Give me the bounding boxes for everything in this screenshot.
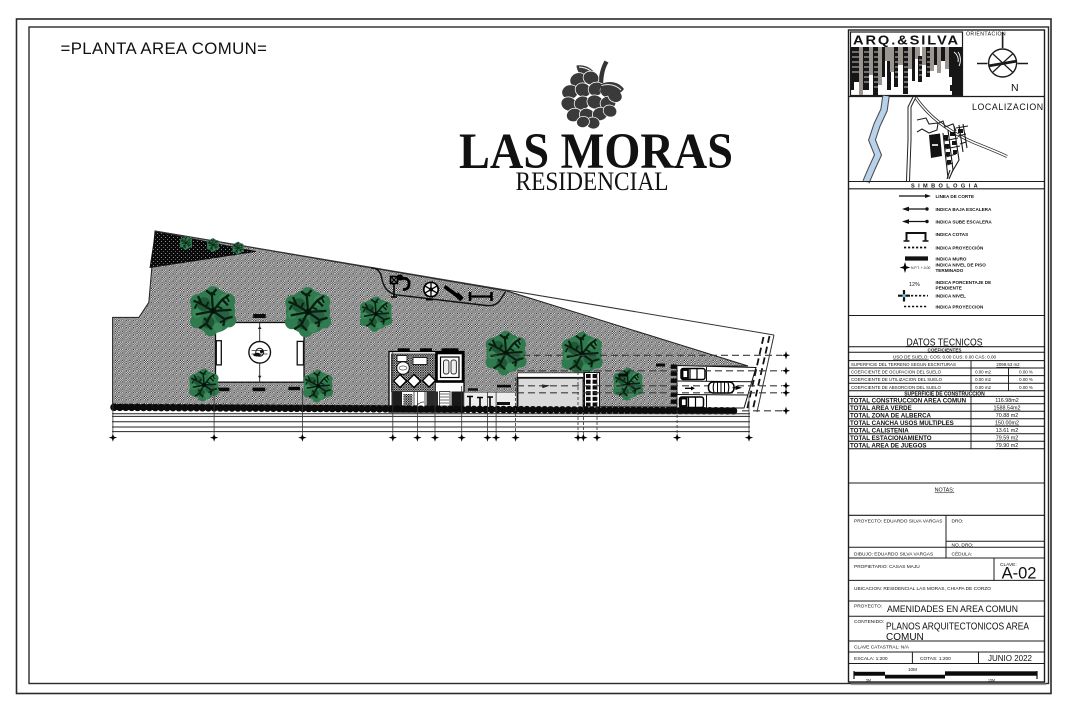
- svg-text:SUPERFICIE DEL TERRENO SEGUN E: SUPERFICIE DEL TERRENO SEGUN ESCRITURAS: [851, 362, 956, 367]
- svg-text:5M: 5M: [866, 679, 871, 683]
- svg-text:2099.53 m2: 2099.53 m2: [996, 362, 1020, 367]
- svg-text:RESIDENCIAL: RESIDENCIAL: [516, 167, 669, 196]
- svg-text:INDICA MURO: INDICA MURO: [936, 256, 967, 261]
- svg-text:10M: 10M: [908, 667, 917, 672]
- svg-text:N: N: [1011, 82, 1019, 94]
- svg-text:AMENIDADES EN AREA COMUN: AMENIDADES EN AREA COMUN: [887, 604, 1018, 615]
- svg-text:USO DE SUELO: COS: 0.00 C: USO DE SUELO: COS: 0.00 CUS: 0.00 CAS: 0…: [893, 355, 997, 360]
- svg-text:0.00 %: 0.00 %: [1019, 385, 1033, 390]
- svg-text:UBICACION: RESIDENCIAL LAS M: UBICACION: RESIDENCIAL LAS MORAS, CHIAPA…: [854, 586, 991, 592]
- svg-text:70.88 m2: 70.88 m2: [996, 413, 1018, 419]
- svg-text:12%: 12%: [909, 282, 920, 288]
- svg-text:15M: 15M: [988, 679, 995, 683]
- svg-text:PLANOS ARQUITECTONICOS AREA: PLANOS ARQUITECTONICOS AREA: [886, 622, 1029, 633]
- svg-text:COEFICIENTE DE OCUPACION DEL S: COEFICIENTE DE OCUPACION DEL SUELO: [851, 370, 942, 375]
- svg-text:0.00 %: 0.00 %: [1019, 377, 1033, 382]
- svg-text:1588.54m2: 1588.54m2: [994, 406, 1021, 412]
- svg-text:TERMINADO: TERMINADO: [936, 268, 964, 273]
- svg-text:INDICA COTAS: INDICA COTAS: [936, 232, 969, 237]
- svg-text:13.61 m2: 13.61 m2: [996, 428, 1018, 434]
- svg-text:PROYECTO: EDUARDO SILVA VARGAS: PROYECTO: EDUARDO SILVA VARGAS: [854, 519, 942, 525]
- svg-text:CÉDULA:: CÉDULA:: [952, 551, 973, 558]
- svg-text:CLAVE CATASTRAL: N/A: CLAVE CATASTRAL: N/A: [854, 645, 910, 651]
- svg-text:COEFICIENTES: COEFICIENTES: [928, 347, 962, 352]
- svg-text:LINEA DE CORTE: LINEA DE CORTE: [936, 194, 975, 199]
- svg-text:0.00 m2: 0.00 m2: [975, 377, 991, 382]
- svg-text:ESCALA: 1:200: ESCALA: 1:200: [854, 656, 888, 662]
- svg-text:LOCALIZACION: LOCALIZACION: [972, 102, 1044, 112]
- svg-text:150.00m2: 150.00m2: [995, 421, 1019, 427]
- svg-text:79.90 m2: 79.90 m2: [996, 443, 1018, 449]
- svg-text:COTAS: 1:200: COTAS: 1:200: [920, 656, 951, 662]
- svg-text:INDICA BAJA ESCALERA: INDICA BAJA ESCALERA: [936, 207, 992, 212]
- svg-text:ARQ.&SILVA: ARQ.&SILVA: [853, 34, 960, 48]
- svg-text:INDICA NIVEL: INDICA NIVEL: [936, 294, 967, 299]
- svg-text:COMUN: COMUN: [886, 632, 924, 643]
- svg-text:INDICA PROYECCION: INDICA PROYECCION: [936, 304, 984, 309]
- svg-text:PENDIENTE: PENDIENTE: [936, 286, 962, 291]
- svg-text:0.00 m2: 0.00 m2: [975, 385, 991, 390]
- svg-text:PROYECTO:: PROYECTO:: [854, 604, 882, 610]
- svg-text:INDICA NIVEL DE PISO: INDICA NIVEL DE PISO: [936, 263, 987, 268]
- svg-text:DRO:: DRO:: [952, 519, 964, 525]
- svg-text:79.59 m2: 79.59 m2: [996, 436, 1018, 442]
- svg-text:=PLANTA AREA COMUN=: =PLANTA AREA COMUN=: [61, 39, 268, 58]
- svg-text:A-02: A-02: [1002, 565, 1037, 583]
- svg-text:INDICA SUBE ESCALERA: INDICA SUBE ESCALERA: [936, 219, 993, 224]
- svg-text:COEFICIENTE DE ABSORCION DEL S: COEFICIENTE DE ABSORCION DEL SUELO: [851, 385, 941, 390]
- svg-text:SIMBOLOGIA: SIMBOLOGIA: [911, 183, 981, 189]
- svg-text:0.00 m2: 0.00 m2: [975, 370, 991, 375]
- svg-text:INDICA PORCENTAJE DE: INDICA PORCENTAJE DE: [936, 280, 992, 285]
- svg-text:CONTENIDO:: CONTENIDO:: [854, 619, 884, 625]
- svg-text:DIBUJO: EDUARDO SILVA VARGAS: DIBUJO: EDUARDO SILVA VARGAS: [854, 552, 933, 558]
- svg-text:PROPIETARIO: CASAS MAJU: PROPIETARIO: CASAS MAJU: [854, 564, 920, 570]
- svg-text:ORIENTACION: ORIENTACION: [966, 32, 1006, 38]
- svg-text:JUNIO 2022: JUNIO 2022: [988, 654, 1033, 663]
- svg-text:0.00 %: 0.00 %: [1019, 370, 1033, 375]
- svg-text:116.98m2: 116.98m2: [995, 398, 1019, 404]
- svg-text:COEFICIENTE DE UTILIZACION DEL: COEFICIENTE DE UTILIZACION DEL SUELO: [851, 377, 943, 382]
- svg-text:NOTAS:: NOTAS:: [935, 488, 955, 494]
- svg-text:INDICA PROYECCIÓN: INDICA PROYECCIÓN: [936, 243, 984, 250]
- svg-text:N.P.T. +-0.00: N.P.T. +-0.00: [911, 266, 931, 270]
